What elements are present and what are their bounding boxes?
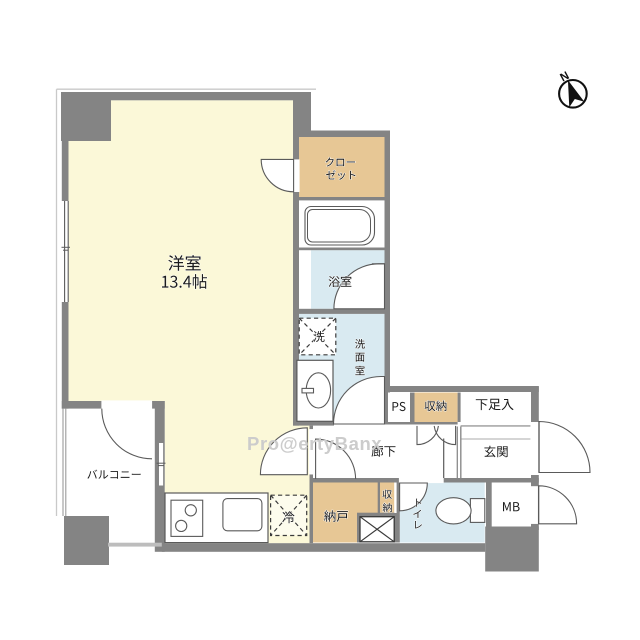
svg-text:Pro@ertyBanx: Pro@ertyBanx <box>247 433 382 454</box>
